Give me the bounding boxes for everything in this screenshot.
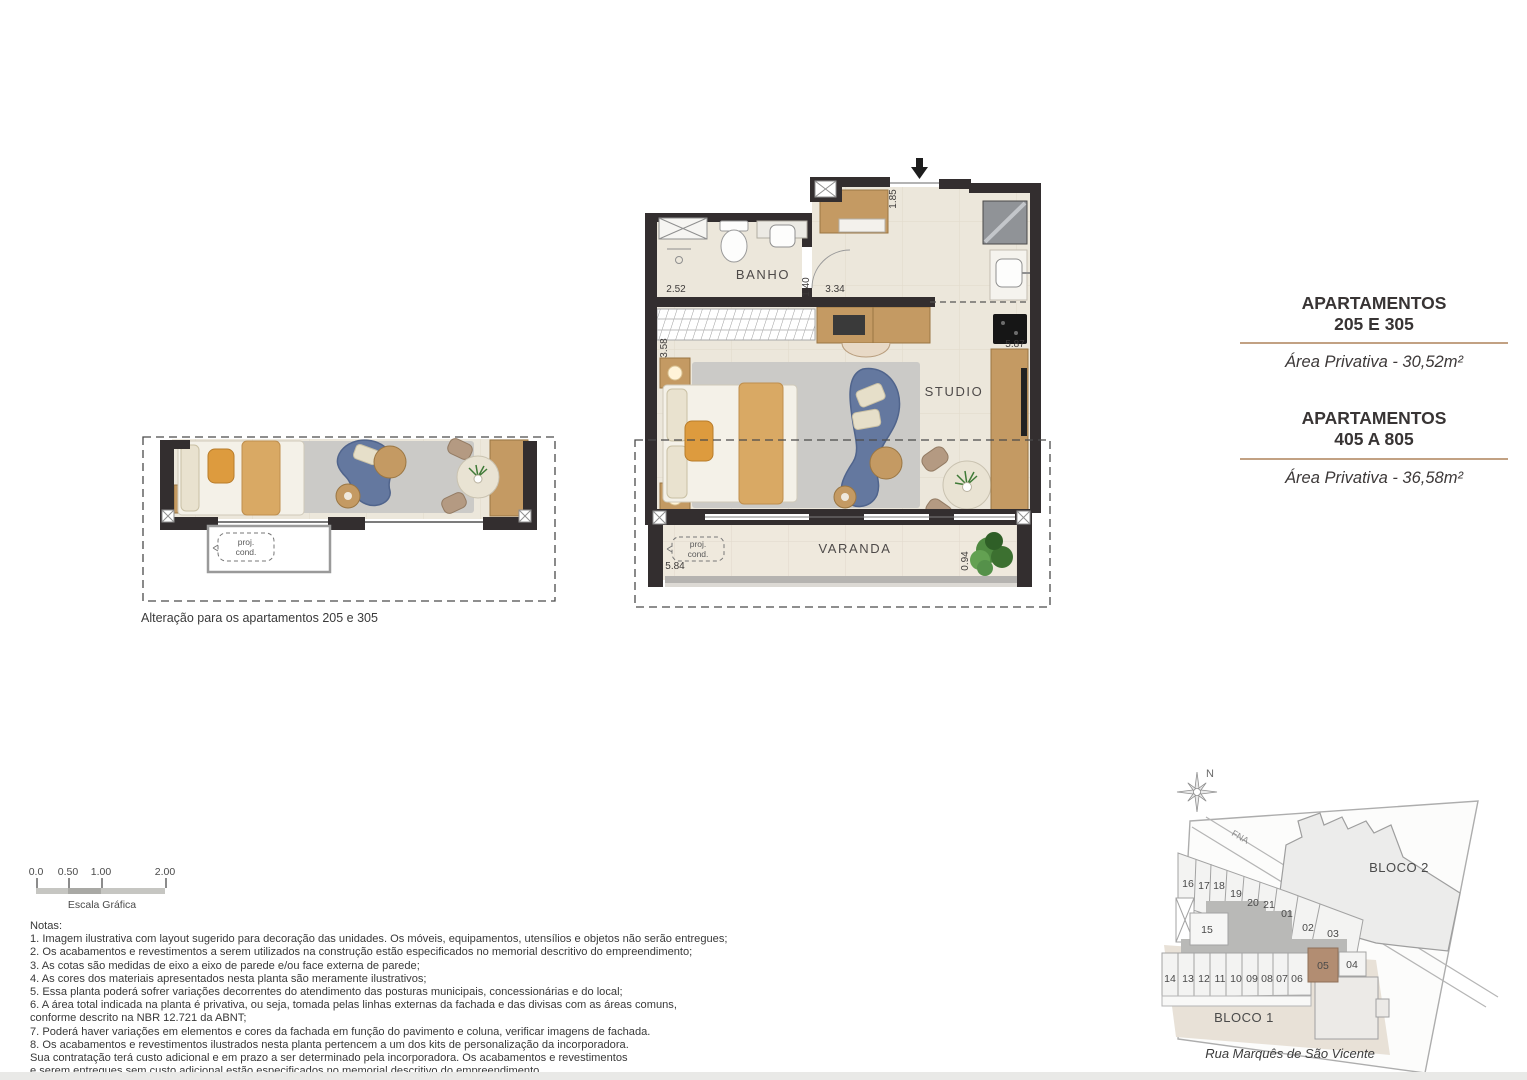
scale-tick (68, 878, 70, 888)
divider (1240, 342, 1508, 344)
info-title-line2: 405 A 805 (1240, 429, 1508, 450)
variant-caption: Alteração para os apartamentos 205 e 305 (141, 611, 378, 625)
dim-2-52: 2.52 (666, 284, 686, 295)
note-item: 7. Poderá haver variações em elementos e… (30, 1026, 730, 1039)
info-title: APARTAMENTOS 205 E 305 (1240, 293, 1508, 334)
pillow (667, 389, 687, 441)
note-item: 4. As cores dos materiais apresentados n… (30, 973, 730, 986)
unit-18: 18 (1213, 880, 1225, 892)
dim-1-40: 1.40 (801, 277, 812, 297)
note-item: 6. A área total indicada na planta é pri… (30, 999, 730, 1025)
unit-14: 14 (1164, 973, 1176, 985)
note-item: 1. Imagem ilustrativa com layout sugerid… (30, 933, 730, 946)
notes-title: Notas: (30, 920, 730, 933)
pillow (667, 446, 687, 498)
note-item: 3. As cotas são medidas de eixo a eixo d… (30, 960, 730, 973)
unit-09: 09 (1246, 973, 1258, 985)
info-panel: APARTAMENTOS 205 E 305 Área Privativa - … (1240, 293, 1508, 488)
scale-caption: Escala Gráfica (68, 899, 136, 911)
scale-segment (68, 888, 101, 894)
blanket (242, 441, 280, 515)
unit-11: 11 (1215, 973, 1226, 985)
unit-10: 10 (1230, 973, 1242, 985)
scale-tick (101, 878, 103, 888)
unit-16: 16 (1182, 878, 1194, 890)
info-title: APARTAMENTOS 405 A 805 (1240, 408, 1508, 449)
unit-20: 20 (1247, 897, 1259, 909)
toilet (721, 230, 747, 262)
scale-tick-label: 2.00 (155, 866, 175, 878)
entrance-arrow-icon (911, 158, 928, 179)
street-name: Rua Marquês de São Vicente (1205, 1046, 1375, 1061)
info-group-205-305: APARTAMENTOS 205 E 305 Área Privativa - … (1240, 293, 1508, 372)
label-varanda: VARANDA (818, 541, 891, 556)
dim-0-94: 0.94 (960, 551, 971, 571)
proj-cond-line1: proj. (690, 539, 707, 549)
site-plan: FNA BLOCO 2 (1148, 755, 1527, 1080)
unit-04: 04 (1346, 959, 1358, 971)
pillow (181, 445, 199, 511)
unit-19: 19 (1230, 888, 1242, 900)
unit-02: 02 (1302, 922, 1314, 934)
unit-06: 06 (1291, 973, 1303, 985)
label-studio: STUDIO (925, 384, 984, 399)
unit-07: 07 (1276, 973, 1288, 985)
tv-on-counter (1021, 368, 1027, 436)
blanket (739, 383, 783, 504)
dim-1-85: 1.85 (888, 189, 899, 209)
private-area-value: Área Privativa - 36,58m² (1240, 469, 1508, 488)
unit-08: 08 (1261, 973, 1273, 985)
bloco2-label: BLOCO 2 (1369, 860, 1429, 875)
north-label: N (1206, 768, 1214, 780)
dim-5-84: 5.84 (665, 561, 685, 572)
variant-floor-plan: proj. cond. (138, 423, 563, 615)
scale-tick-label: 0.50 (58, 866, 78, 878)
scale-tick (165, 878, 167, 888)
private-area-value: Área Privativa - 30,52m² (1240, 353, 1508, 372)
scale-tick-label: 1.00 (91, 866, 111, 878)
scale-segment (36, 888, 68, 894)
note-item: 5. Essa planta poderá sofrer variações d… (30, 986, 730, 999)
proj-cond-line1: proj. (238, 537, 255, 547)
basin (770, 225, 795, 247)
label-banho: BANHO (736, 267, 790, 282)
page-bottom-strip (0, 1072, 1527, 1080)
info-title-line1: APARTAMENTOS (1240, 293, 1508, 314)
bloco1-label: BLOCO 1 (1214, 1010, 1274, 1025)
balcony-strip (1162, 996, 1311, 1006)
scale-tick (36, 878, 38, 888)
closet (657, 309, 815, 340)
floorplan-page: proj. cond. BANHO STUDIO VARANDA 2.52 1.… (0, 0, 1527, 1080)
unit-01: 01 (1281, 908, 1293, 920)
lamp-icon (668, 366, 682, 380)
sink (996, 259, 1022, 287)
dim-3-34: 3.34 (825, 284, 845, 295)
ottoman (374, 446, 406, 478)
variant-proj-box: proj. cond. (208, 526, 330, 572)
divider (1240, 458, 1508, 460)
unit-13: 13 (1182, 973, 1194, 985)
bloco1-wing (1315, 977, 1389, 1039)
info-title-line1: APARTAMENTOS (1240, 408, 1508, 429)
dim-3-58: 3.58 (659, 338, 670, 358)
scale-segment (101, 888, 165, 894)
variant-bed (174, 441, 304, 515)
unit-15: 15 (1201, 924, 1213, 936)
tv-icon (833, 315, 865, 335)
unit-03: 03 (1327, 928, 1339, 940)
main-floor-plan: proj. cond. BANHO STUDIO VARANDA 2.52 1.… (617, 157, 1067, 622)
ottoman (870, 447, 902, 479)
unit-12: 12 (1198, 973, 1210, 985)
proj-cond-line2: cond. (688, 549, 709, 559)
unit-05: 05 (1317, 960, 1329, 972)
throw-blanket (685, 421, 713, 461)
notes-block: Notas: 1. Imagem ilustrativa com layout … (30, 920, 730, 1078)
scale-tick-label: 0.0 (29, 866, 44, 878)
note-item: 2. Os acabamentos e revestimentos a sere… (30, 946, 730, 959)
unit-21: 21 (1263, 899, 1275, 911)
info-group-405-805: APARTAMENTOS 405 A 805 Área Privativa - … (1240, 408, 1508, 487)
graphic-scale: 0.0 0.50 1.00 2.00 Escala Gráfica (22, 866, 192, 916)
proj-cond-line2: cond. (236, 547, 257, 557)
throw-blanket (208, 449, 234, 483)
dim-5-87: 5.87 (1005, 339, 1025, 350)
info-title-line2: 205 E 305 (1240, 314, 1508, 335)
unit-17: 17 (1198, 880, 1210, 892)
